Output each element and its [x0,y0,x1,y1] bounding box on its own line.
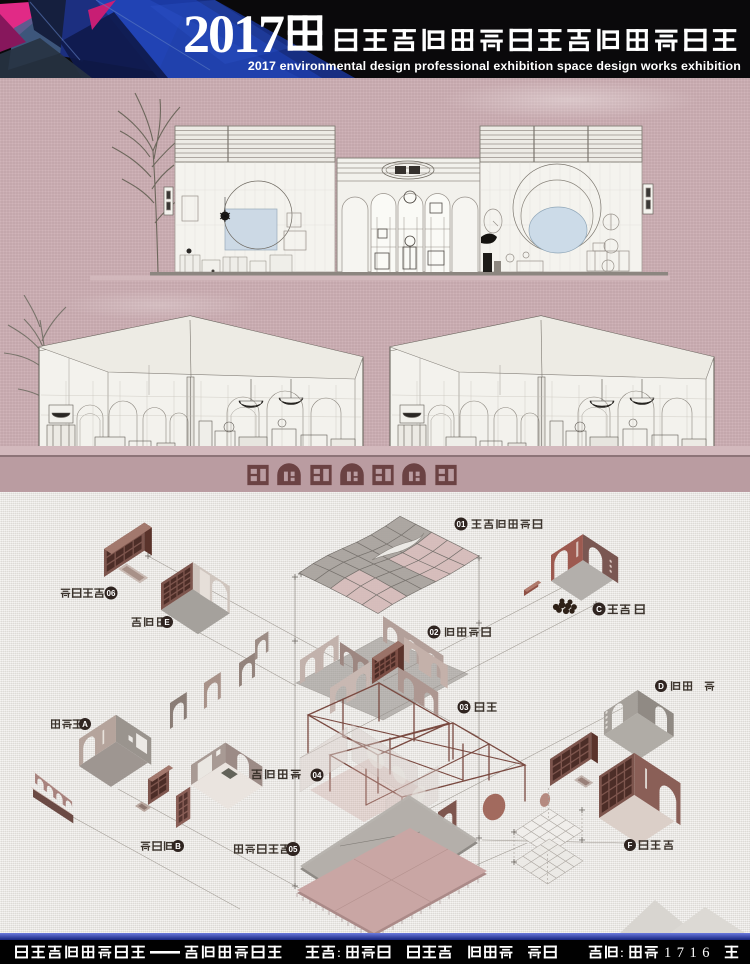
svg-text::: : [337,946,341,961]
svg-text:06: 06 [107,589,116,598]
svg-text:03: 03 [460,703,469,712]
svg-text:A: A [82,720,88,729]
svg-text:01: 01 [457,520,466,529]
svg-text:1716: 1716 [664,945,715,961]
svg-text:2017 environmental design prof: 2017 environmental design professional e… [248,59,741,73]
svg-text:02: 02 [430,628,439,637]
svg-text:F: F [628,841,633,850]
svg-text:B: B [175,842,181,851]
svg-text::: : [620,946,624,961]
svg-text:C: C [596,605,602,614]
svg-text:2017: 2017 [183,4,284,64]
svg-text:04: 04 [313,771,322,780]
svg-text:E: E [164,618,170,627]
svg-text:D: D [658,682,664,691]
svg-text:05: 05 [289,845,298,854]
